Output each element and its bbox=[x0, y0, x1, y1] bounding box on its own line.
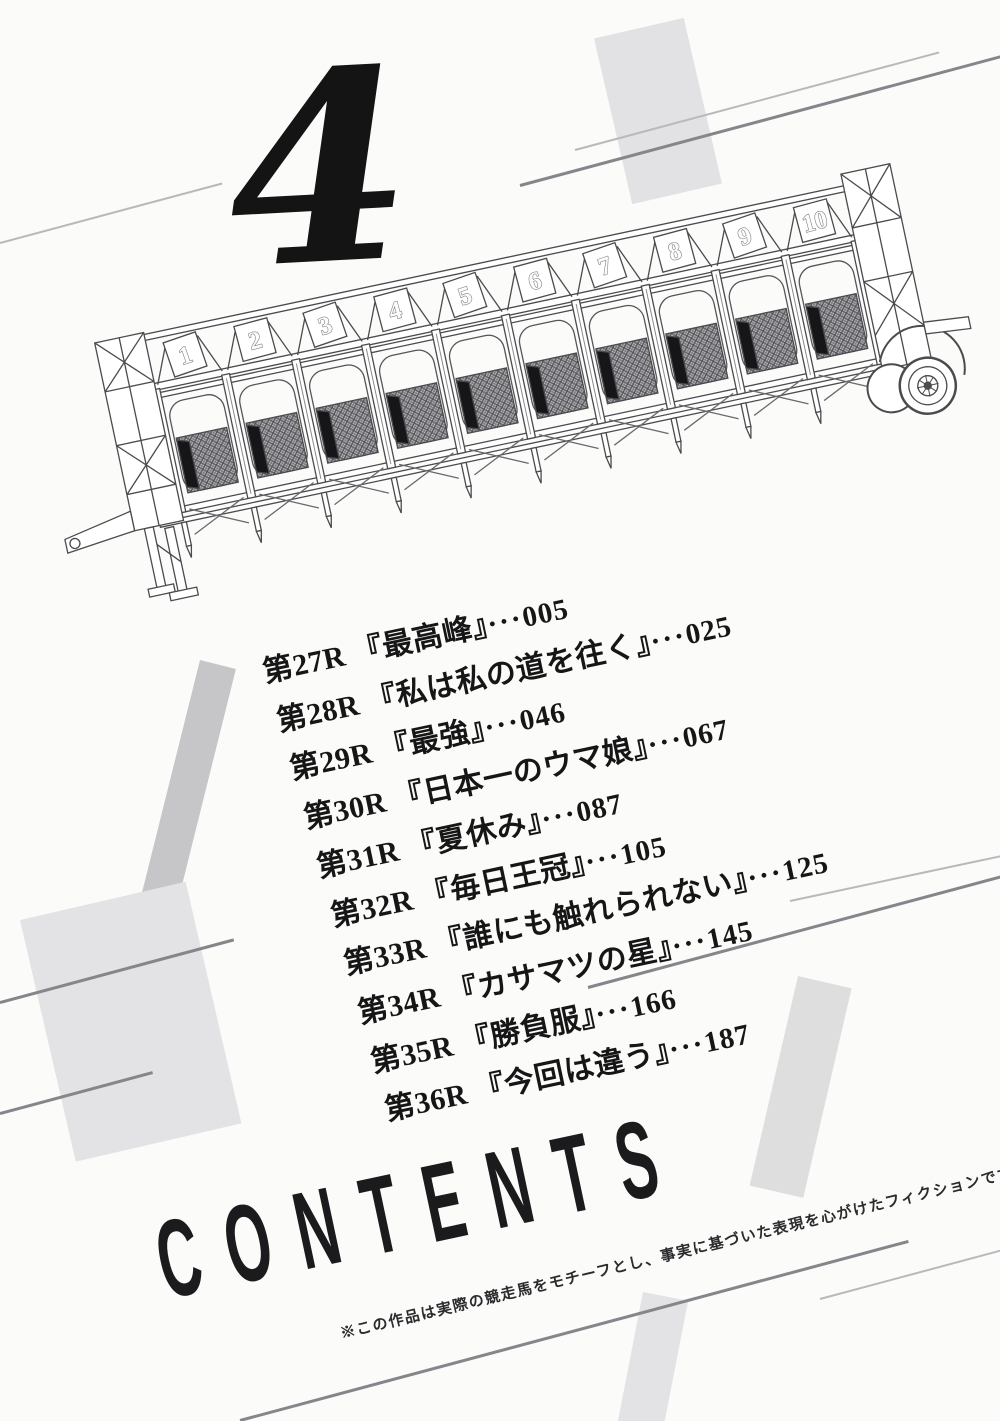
toc-page-number: 145 bbox=[703, 915, 755, 956]
gate-spike-tip bbox=[326, 516, 333, 529]
gate-spike-tip bbox=[186, 545, 193, 558]
toc-dots: ··· bbox=[668, 924, 710, 964]
toc-page-number: 187 bbox=[701, 1019, 753, 1060]
toc-dots: ··· bbox=[647, 619, 689, 659]
gate-spike bbox=[321, 492, 331, 517]
gate-spike-tip bbox=[466, 486, 473, 499]
gate-left-tower bbox=[26, 333, 199, 620]
gate-spike-tip bbox=[676, 441, 683, 454]
gate-spike bbox=[251, 507, 261, 532]
toc-dots: ··· bbox=[665, 1027, 707, 1067]
gate-spike bbox=[461, 462, 471, 487]
gate-spike-tip bbox=[816, 412, 823, 425]
gate-spike bbox=[531, 447, 541, 472]
toc-page-number: 166 bbox=[627, 983, 679, 1024]
gate-spike bbox=[391, 477, 401, 502]
gate-spike-tip bbox=[536, 471, 543, 484]
toc-page-number: 067 bbox=[679, 714, 731, 755]
gate-spike-tip bbox=[256, 530, 263, 543]
gate-spike-tip bbox=[606, 456, 613, 469]
gate-spike bbox=[671, 418, 681, 443]
toc-dots: ··· bbox=[644, 722, 686, 762]
toc-page-number: 125 bbox=[779, 847, 831, 888]
gate-spike-tip bbox=[746, 426, 753, 439]
toc-page-number: 087 bbox=[573, 788, 625, 829]
gate-right-tower bbox=[822, 154, 986, 425]
gate-spike bbox=[181, 522, 191, 547]
gate-spike bbox=[741, 403, 751, 428]
toc-page-number: 005 bbox=[519, 593, 571, 634]
volume-number: 4 bbox=[221, 33, 417, 304]
gate-group: 12345678910 bbox=[24, 154, 991, 619]
gate-spike-tip bbox=[396, 501, 403, 514]
manga-contents-page: 12345678910 bbox=[0, 0, 1000, 1421]
gate-spike bbox=[601, 433, 611, 458]
toc-page-number: 105 bbox=[617, 830, 669, 871]
gate-spike bbox=[811, 388, 821, 413]
toc-page-number: 025 bbox=[682, 610, 734, 651]
toc-dots: ··· bbox=[581, 839, 623, 879]
